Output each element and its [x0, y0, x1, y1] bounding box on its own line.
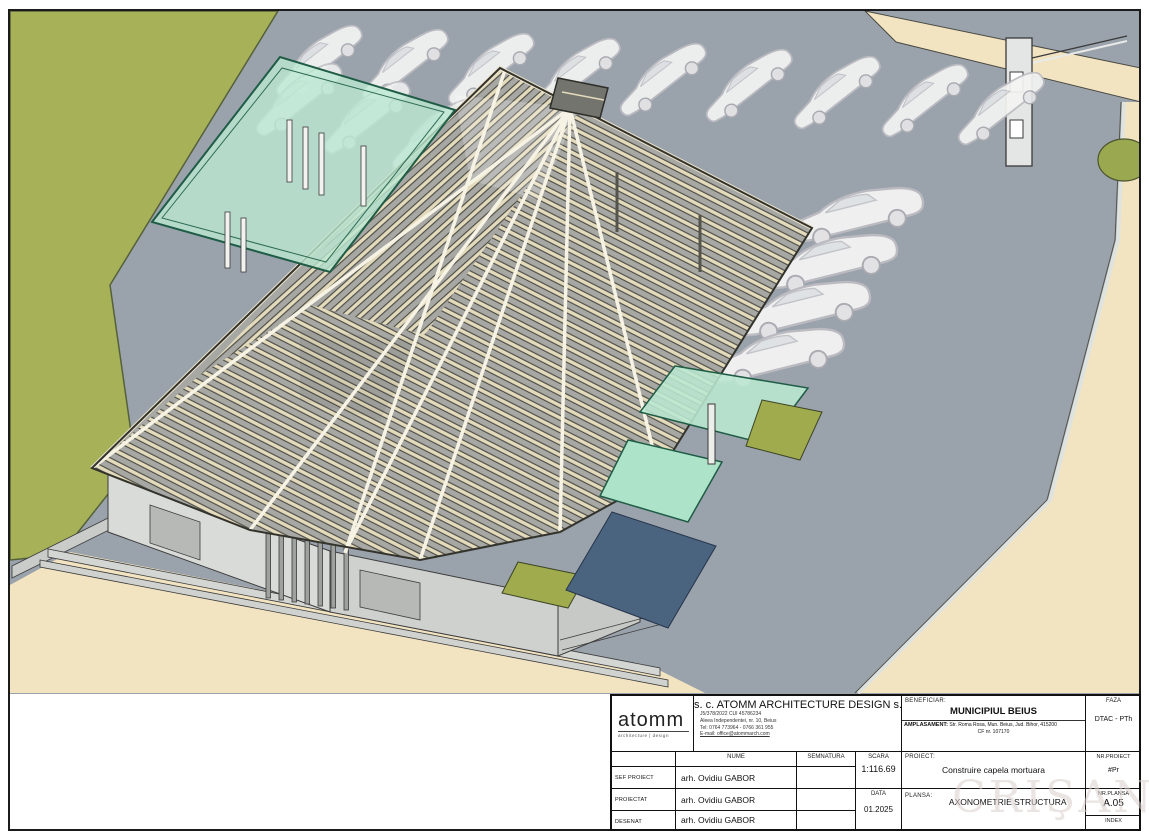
data-label: DATA: [856, 789, 901, 797]
beneficiar-label: BENEFICIAR:: [902, 696, 1085, 704]
row-proiectat: PROIECTAT: [612, 789, 676, 811]
faza-value: DTAC - PTh: [1086, 716, 1141, 723]
plansa-value: AXONOMETRIE STRUCTURA: [932, 797, 1083, 807]
company-reg: J5/378/2022 CUI 45786234: [700, 711, 901, 718]
nr-proiect-label: NR.PROIECT: [1086, 752, 1141, 760]
logo-tagline: architecture | design: [618, 731, 689, 738]
faza-cell: FAZA DTAC - PTh: [1086, 696, 1141, 752]
amplasament-value: Str. Roma Rosa, Mun. Beius, Jud. Bihor, …: [949, 722, 1057, 728]
semnatura-field: [797, 811, 856, 831]
company-name: s. c. ATOMM ARCHITECTURE DESIGN s. r. l.: [694, 696, 901, 711]
scara-label: SCARA: [856, 752, 901, 760]
company-phone: Tel: 0764 773964 - 0766 361 955: [700, 725, 901, 732]
semnatura-field: [797, 789, 856, 811]
title-block: atomm architecture | design s. c. ATOMM …: [610, 694, 1141, 831]
sef-proiect-name: arh. Ovidiu GABOR: [676, 767, 796, 783]
proiect-value: Construire capela mortuara: [902, 765, 1085, 775]
scara-cell: SCARA 1:116.69: [856, 752, 902, 789]
amplasament-cf: CF nr. 107170: [904, 729, 1083, 736]
nr-plansa-cell: NR.PLANSA A.05: [1086, 789, 1141, 816]
nr-plansa-value: A.05: [1086, 798, 1141, 809]
amplasament-label: AMPLASAMENT:: [904, 722, 948, 728]
beneficiar-value: MUNICIPIUL BEIUS: [902, 706, 1085, 717]
logo-cell: atomm architecture | design: [612, 696, 694, 752]
scara-value: 1:116.69: [856, 764, 901, 774]
index-cell: INDEX: [1086, 816, 1141, 831]
data-cell: DATA 01.2025: [856, 789, 902, 831]
proiect-label: PROIECT:: [902, 752, 1085, 760]
company-cell: s. c. ATOMM ARCHITECTURE DESIGN s. r. l.…: [694, 696, 902, 752]
bush: [1098, 139, 1149, 181]
proiect-cell: PROIECT: Construire capela mortuara: [902, 752, 1086, 789]
company-logo: atomm: [618, 710, 689, 730]
nr-proiect-value: #Pr: [1086, 767, 1141, 774]
header-semnatura: SEMNATURA: [797, 752, 856, 767]
company-email: E-mail: office@atommarch.com: [700, 731, 901, 738]
nr-proiect-cell: NR.PROIECT #Pr: [1086, 752, 1141, 789]
plansa-cell: PLANSA: AXONOMETRIE STRUCTURA: [902, 789, 1086, 831]
beneficiar-cell: BENEFICIAR: MUNICIPIUL BEIUS AMPLASAMENT…: [902, 696, 1086, 752]
company-address: Aleea Independentei, nr. 10, Beius: [700, 718, 901, 725]
semnatura-field: [797, 767, 856, 789]
plansa-label: PLANSA:: [905, 793, 932, 799]
index-label: INDEX: [1086, 816, 1141, 824]
proiectat-name: arh. Ovidiu GABOR: [676, 789, 796, 805]
nr-plansa-label: NR.PLANSA: [1086, 789, 1141, 797]
data-value: 01.2025: [856, 805, 901, 814]
header-nume: NUME: [676, 752, 797, 767]
row-desenat: DESENAT: [612, 811, 676, 831]
drawing-sheet: atomm architecture | design s. c. ATOMM …: [0, 0, 1149, 837]
row-sef-proiect: SEF PROIECT: [612, 767, 676, 789]
desenat-name: arh. Ovidiu GABOR: [676, 811, 796, 825]
faza-label: FAZA: [1086, 696, 1141, 704]
